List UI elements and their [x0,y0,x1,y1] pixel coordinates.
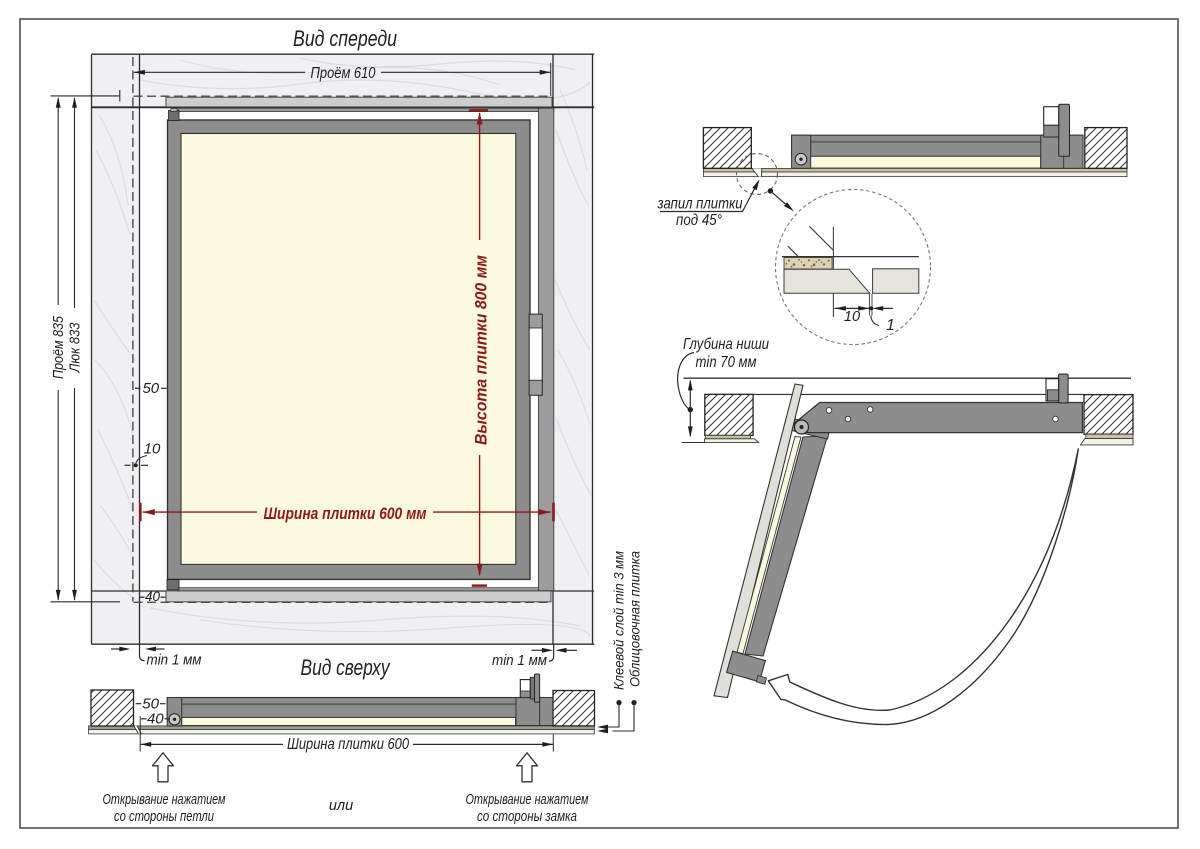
svg-text:min 70 мм: min 70 мм [696,354,757,371]
svg-text:со стороны петли: со стороны петли [114,809,214,825]
svg-text:Глубина ниши: Глубина ниши [683,336,769,353]
svg-text:10: 10 [144,441,161,458]
svg-text:10: 10 [844,309,860,325]
svg-text:Открывание нажатием: Открывание нажатием [103,792,226,808]
svg-text:Люк 833: Люк 833 [68,323,84,374]
svg-text:Проём 835: Проём 835 [51,315,67,379]
svg-text:1: 1 [886,317,895,334]
svg-text:Проём 610: Проём 610 [311,65,376,82]
svg-text:Облицовочная плитка: Облицовочная плитка [628,551,644,687]
svg-text:Вид сверху: Вид сверху [301,655,392,680]
svg-text:40: 40 [145,589,161,604]
svg-text:со стороны замка: со стороны замка [477,809,577,825]
svg-text:Вид спереди: Вид спереди [293,26,397,51]
svg-text:min 1 мм: min 1 мм [492,652,547,669]
svg-text:Ширина плитки 600: Ширина плитки 600 [287,736,409,753]
svg-text:Открывание нажатием: Открывание нажатием [466,792,589,808]
svg-text:под 45°: под 45° [676,212,723,229]
svg-text:запил плитки: запил плитки [657,196,743,213]
svg-text:50: 50 [142,380,159,397]
svg-text:Ширина плитки 600 мм: Ширина плитки 600 мм [264,505,427,523]
svg-text:Высота плитки 800 мм: Высота плитки 800 мм [473,255,491,445]
svg-text:40: 40 [147,711,164,728]
svg-text:min 1 мм: min 1 мм [147,652,202,669]
svg-text:Клеевой слой min 3 мм: Клеевой слой min 3 мм [612,551,628,690]
svg-text:или: или [329,798,353,814]
